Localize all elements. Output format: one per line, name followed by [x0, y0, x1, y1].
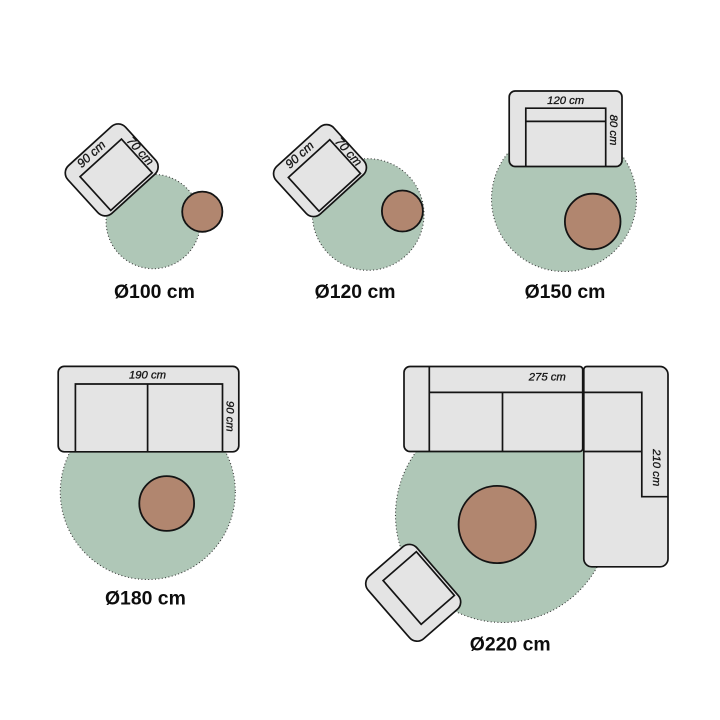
svg-text:190 cm: 190 cm — [129, 370, 166, 382]
svg-text:90 cm: 90 cm — [224, 401, 236, 432]
svg-text:120 cm: 120 cm — [547, 95, 584, 107]
svg-text:Ø180 cm: Ø180 cm — [105, 587, 186, 609]
svg-text:Ø150 cm: Ø150 cm — [525, 281, 606, 303]
svg-text:275 cm: 275 cm — [528, 372, 566, 384]
svg-text:Ø120 cm: Ø120 cm — [315, 281, 396, 303]
svg-text:Ø220 cm: Ø220 cm — [470, 633, 551, 655]
svg-text:80 cm: 80 cm — [607, 115, 619, 146]
svg-text:210 cm: 210 cm — [650, 448, 662, 486]
svg-text:Ø100 cm: Ø100 cm — [114, 281, 195, 303]
